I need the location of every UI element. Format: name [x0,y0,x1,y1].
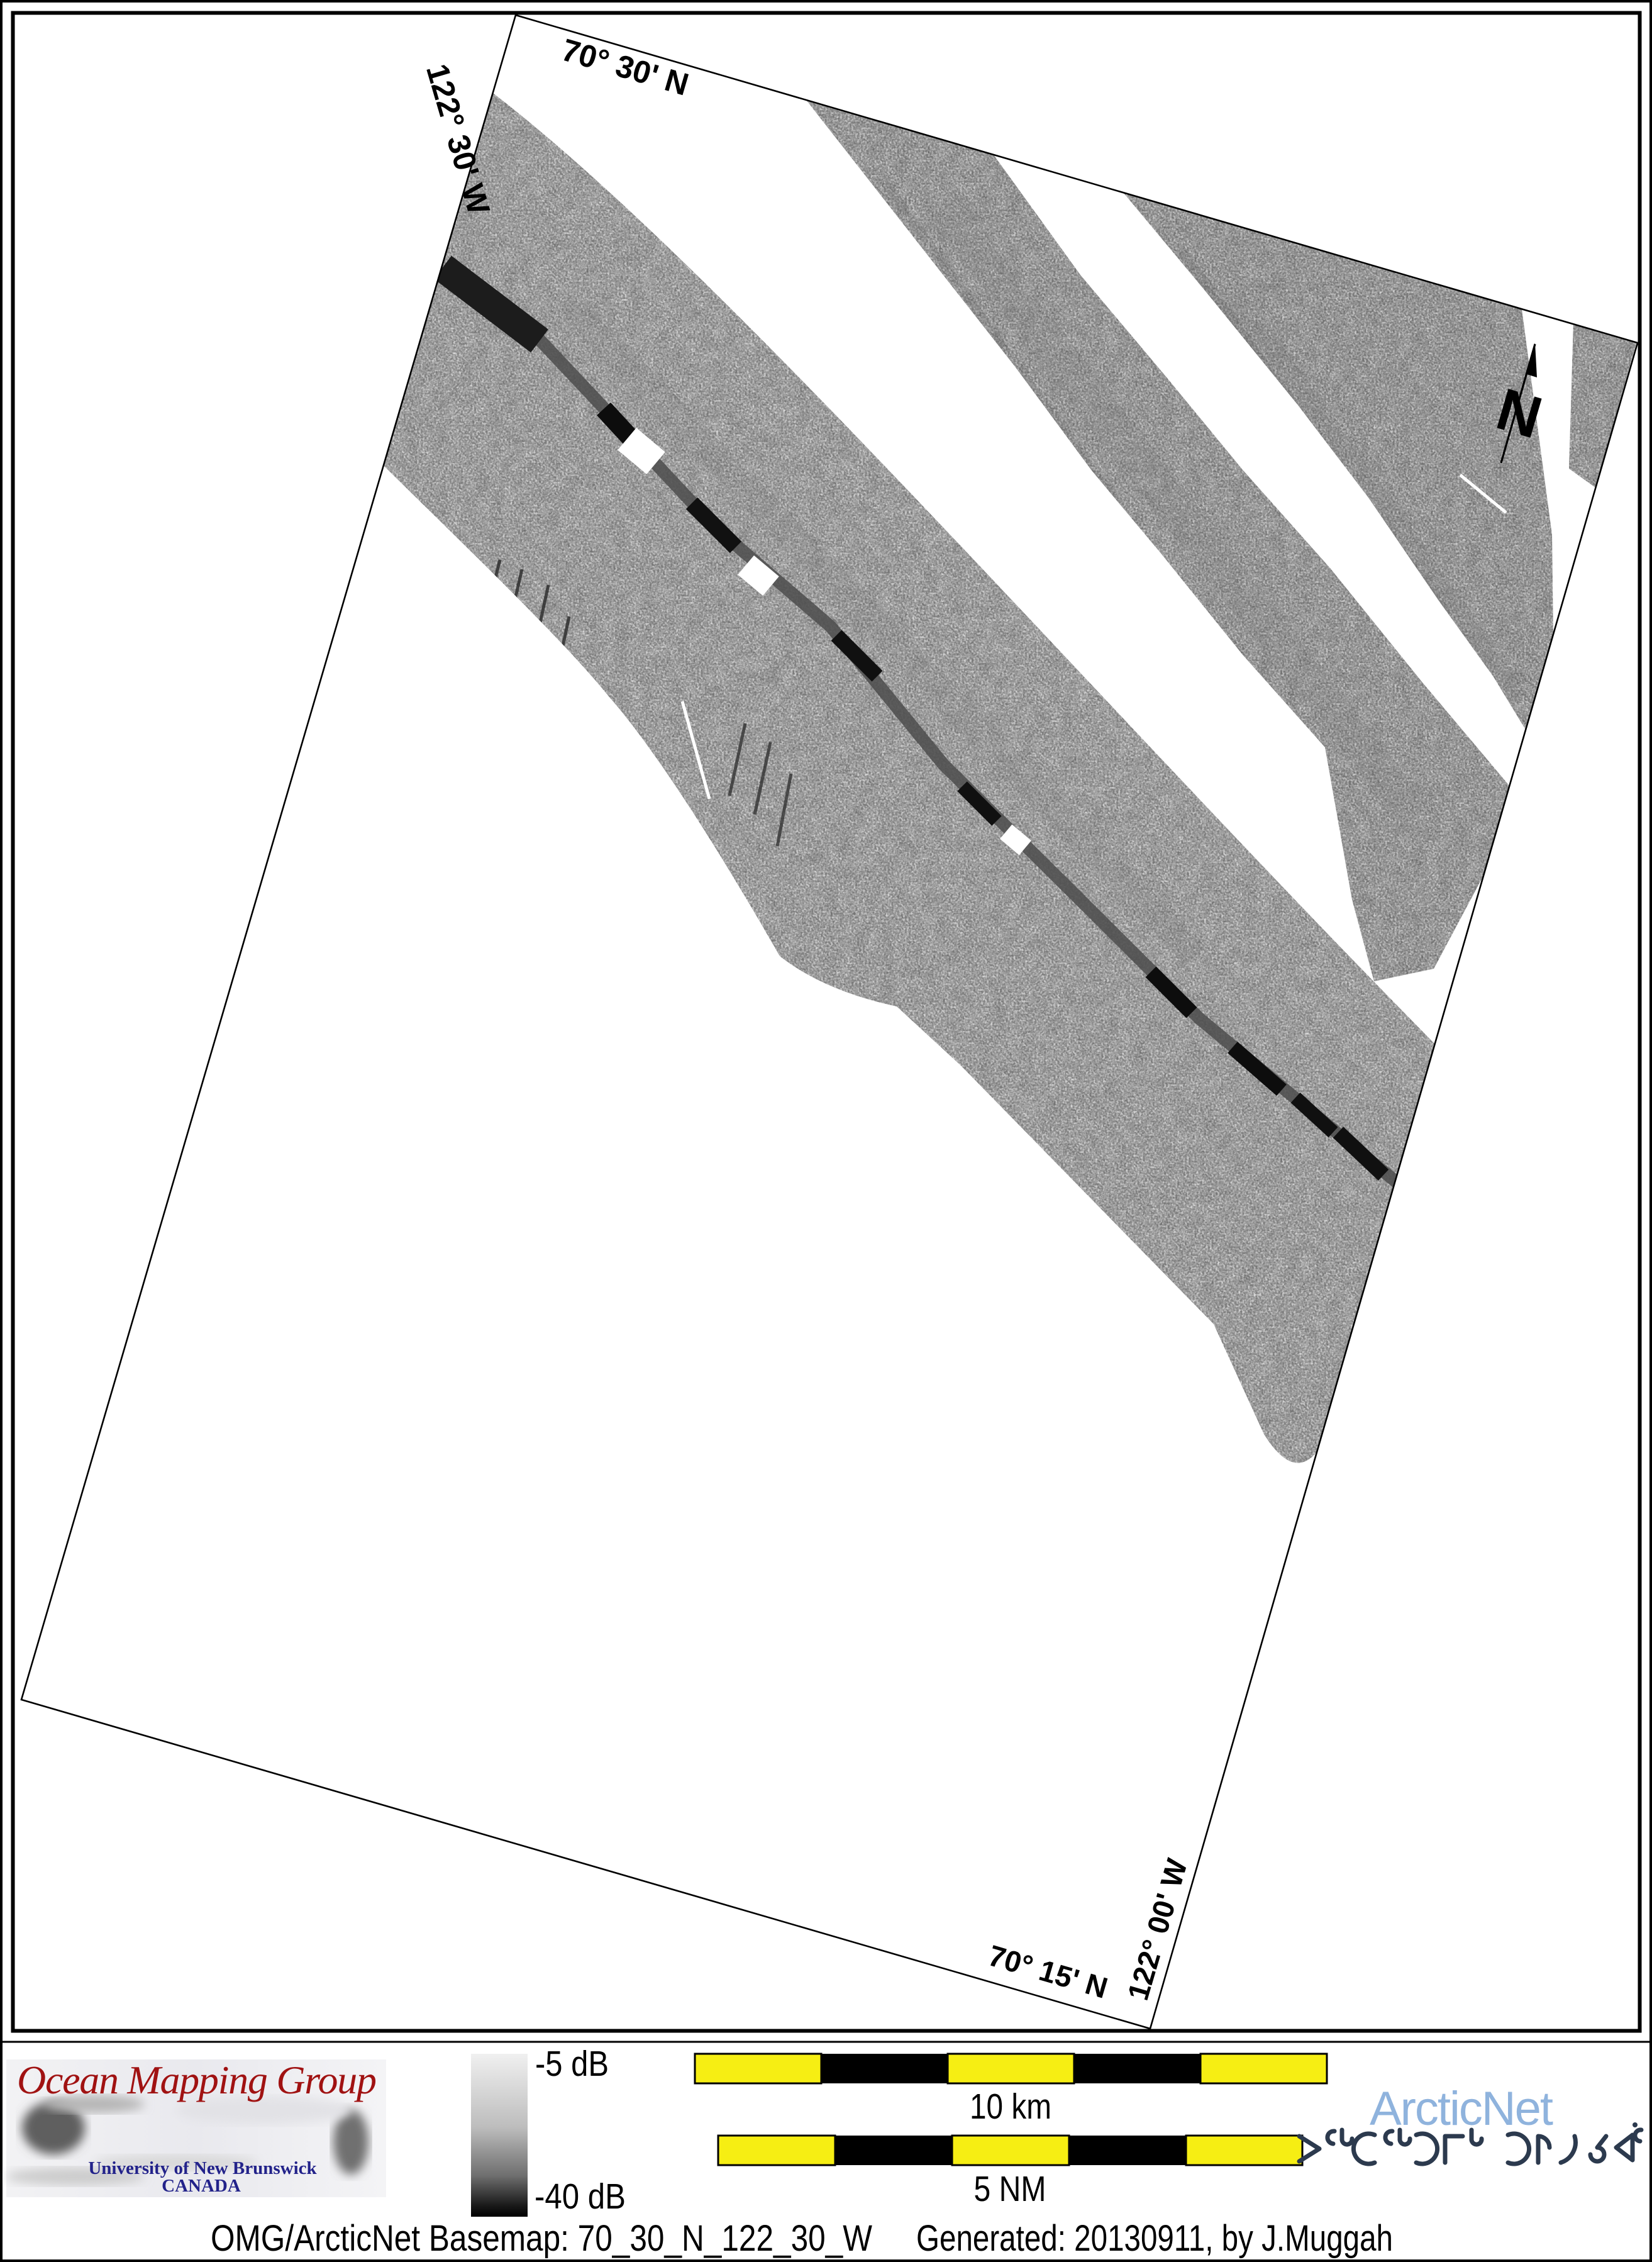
svg-text:Ocean Mapping Group: Ocean Mapping Group [17,2058,377,2102]
svg-text:Generated: 20130911, by J.Mugg: Generated: 20130911, by J.Muggah [916,2218,1393,2259]
svg-text:ArcticNet: ArcticNet [1370,2082,1553,2136]
svg-text:-40 dB: -40 dB [535,2176,626,2217]
svg-text:-5 dB: -5 dB [535,2044,609,2084]
svg-text:10 km: 10 km [970,2086,1051,2127]
svg-text:OMG/ArcticNet Basemap: 70_30_N: OMG/ArcticNet Basemap: 70_30_N_122_30_W [211,2218,872,2259]
svg-text:5 NM: 5 NM [974,2169,1046,2209]
svg-text:CANADA: CANADA [162,2176,241,2196]
